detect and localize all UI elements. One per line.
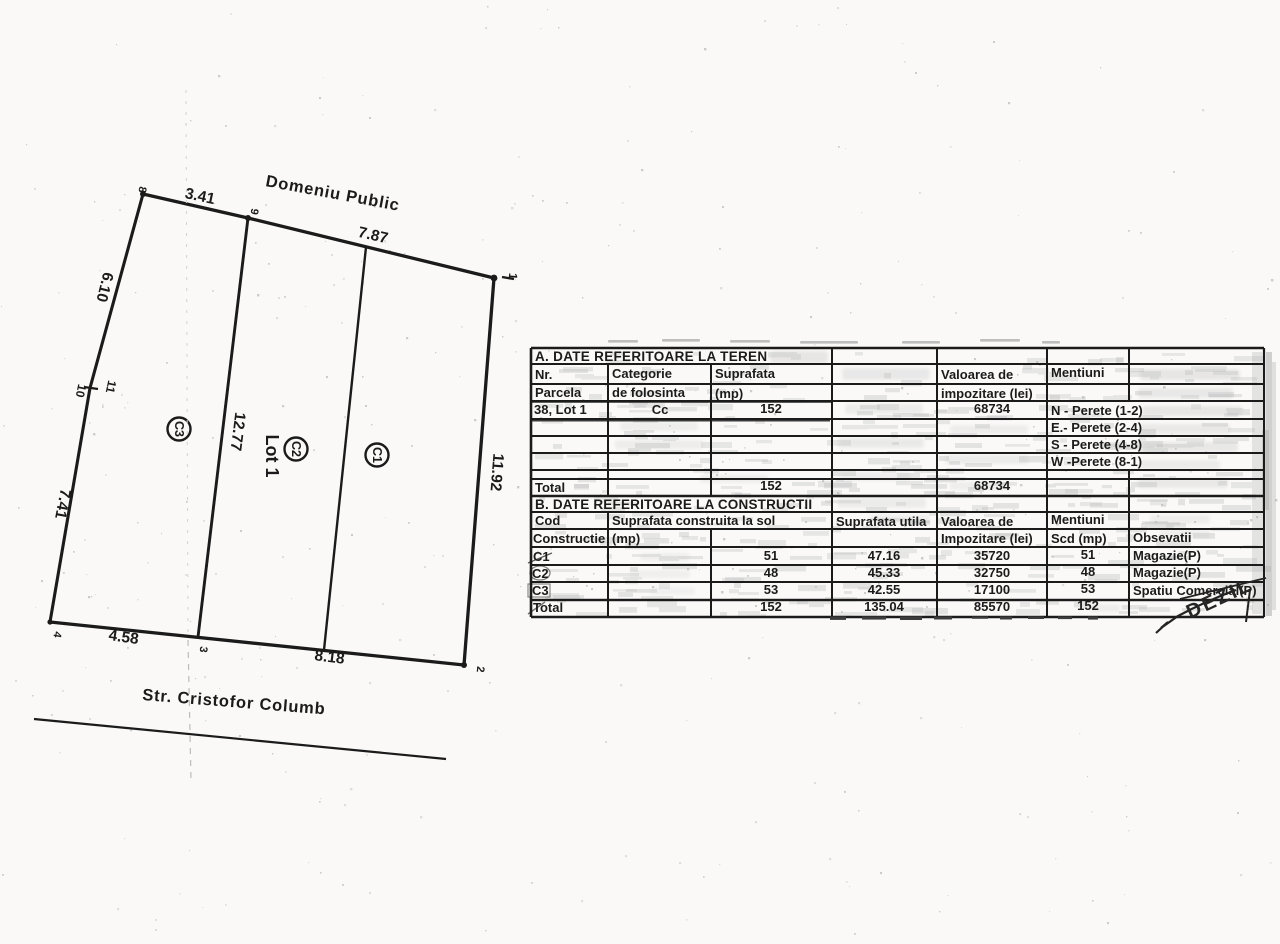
- svg-text:B. DATE REFERITOARE LA CONSTRU: B. DATE REFERITOARE LA CONSTRUCTII: [535, 497, 812, 512]
- svg-text:C1: C1: [533, 549, 550, 564]
- svg-text:Mentiuni: Mentiuni: [1051, 512, 1104, 527]
- svg-text:152: 152: [760, 478, 782, 493]
- svg-text:47.16: 47.16: [868, 548, 901, 563]
- svg-text:Total: Total: [535, 480, 565, 495]
- svg-text:32750: 32750: [974, 565, 1010, 580]
- svg-text:48: 48: [764, 565, 778, 580]
- svg-text:Cod: Cod: [535, 513, 560, 528]
- svg-text:Lot 1: Lot 1: [262, 435, 282, 478]
- svg-text:51: 51: [1081, 547, 1095, 562]
- svg-text:53: 53: [764, 582, 778, 597]
- svg-text:Impozitare (lei): Impozitare (lei): [941, 531, 1033, 546]
- svg-text:Scd (mp): Scd (mp): [1051, 531, 1107, 546]
- svg-text:(mp): (mp): [612, 531, 640, 546]
- svg-text:(mp): (mp): [715, 386, 743, 401]
- svg-text:Magazie(P): Magazie(P): [1133, 565, 1201, 580]
- svg-text:42.55: 42.55: [868, 582, 901, 597]
- svg-text:Valoarea de: Valoarea de: [941, 514, 1013, 529]
- svg-text:135.04: 135.04: [864, 599, 905, 614]
- svg-text:152: 152: [1077, 598, 1099, 613]
- svg-text:Suprafata utila: Suprafata utila: [836, 514, 927, 529]
- svg-text:Parcela: Parcela: [535, 385, 582, 400]
- svg-text:45.33: 45.33: [868, 565, 901, 580]
- svg-text:Valoarea de: Valoarea de: [941, 367, 1013, 382]
- svg-text:Cc: Cc: [652, 402, 669, 417]
- svg-text:2: 2: [474, 666, 486, 673]
- svg-text:Categorie: Categorie: [612, 366, 672, 381]
- svg-text:impozitare (lei): impozitare (lei): [941, 386, 1033, 401]
- svg-text:A. DATE REFERITOARE LA TEREN: A. DATE REFERITOARE LA TEREN: [535, 349, 767, 364]
- svg-text:Mentiuni: Mentiuni: [1051, 365, 1104, 380]
- svg-text:51: 51: [764, 548, 778, 563]
- svg-text:Suprafata construita la sol: Suprafata construita la sol: [612, 513, 775, 528]
- svg-text:Magazie(P): Magazie(P): [1133, 548, 1201, 563]
- svg-text:38, Lot 1: 38, Lot 1: [534, 402, 587, 417]
- svg-text:Obsevatii: Obsevatii: [1133, 530, 1192, 545]
- svg-text:de folosinta: de folosinta: [612, 385, 686, 400]
- svg-text:68734: 68734: [974, 401, 1011, 416]
- svg-text:48: 48: [1081, 564, 1095, 579]
- svg-text:11.92: 11.92: [487, 453, 507, 492]
- svg-text:C1: C1: [370, 447, 384, 463]
- svg-text:C2: C2: [289, 441, 303, 457]
- svg-text:17100: 17100: [974, 582, 1010, 597]
- svg-text:53: 53: [1081, 581, 1095, 596]
- svg-text:S - Perete (4-8): S - Perete (4-8): [1051, 437, 1142, 452]
- svg-text:152: 152: [760, 599, 782, 614]
- svg-text:Constructie: Constructie: [533, 531, 605, 546]
- svg-text:152: 152: [760, 401, 782, 416]
- svg-text:C3: C3: [172, 421, 186, 437]
- svg-text:Suprafata: Suprafata: [715, 366, 776, 381]
- svg-text:68734: 68734: [974, 478, 1011, 493]
- svg-text:Nr.: Nr.: [535, 367, 552, 382]
- svg-text:C3: C3: [532, 583, 549, 598]
- svg-text:W -Perete (8-1): W -Perete (8-1): [1051, 454, 1142, 469]
- svg-text:E.- Perete (2-4): E.- Perete (2-4): [1051, 420, 1142, 435]
- svg-text:N - Perete (1-2): N - Perete (1-2): [1051, 403, 1143, 418]
- svg-text:85570: 85570: [974, 599, 1010, 614]
- svg-text:35720: 35720: [974, 548, 1010, 563]
